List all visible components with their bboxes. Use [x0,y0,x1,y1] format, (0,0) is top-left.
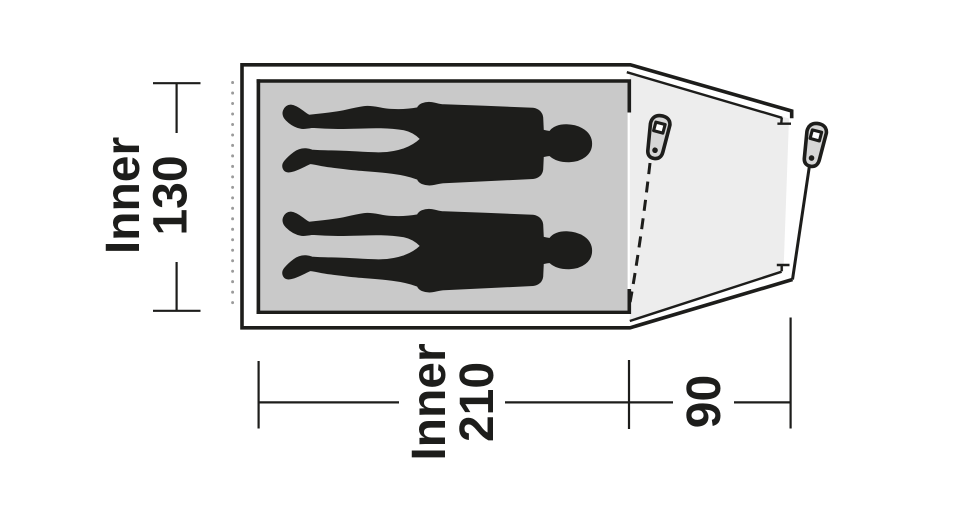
svg-text:Inner: Inner [403,343,456,460]
svg-text:130: 130 [145,155,198,235]
svg-text:Inner: Inner [97,137,150,254]
svg-text:210: 210 [451,362,504,442]
svg-text:90: 90 [678,375,731,428]
